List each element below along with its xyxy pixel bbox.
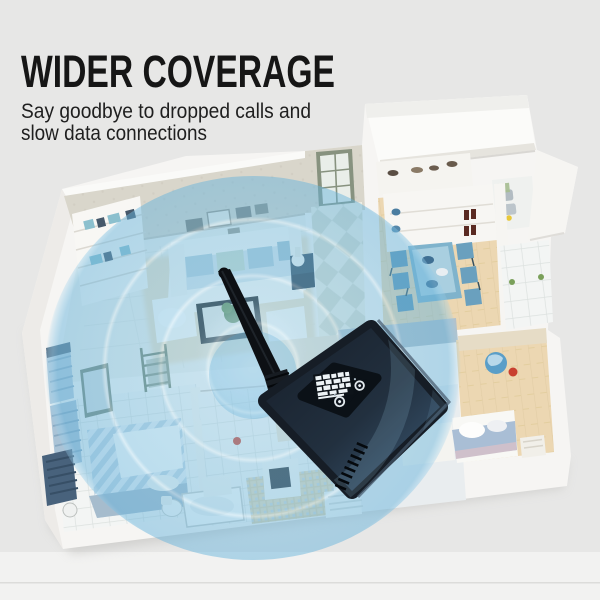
svg-text:slow data connections: slow data connections bbox=[21, 121, 207, 145]
svg-text:Say goodbye to dropped calls a: Say goodbye to dropped calls and bbox=[21, 99, 311, 123]
svg-text:WIDER COVERAGE: WIDER COVERAGE bbox=[21, 46, 335, 97]
